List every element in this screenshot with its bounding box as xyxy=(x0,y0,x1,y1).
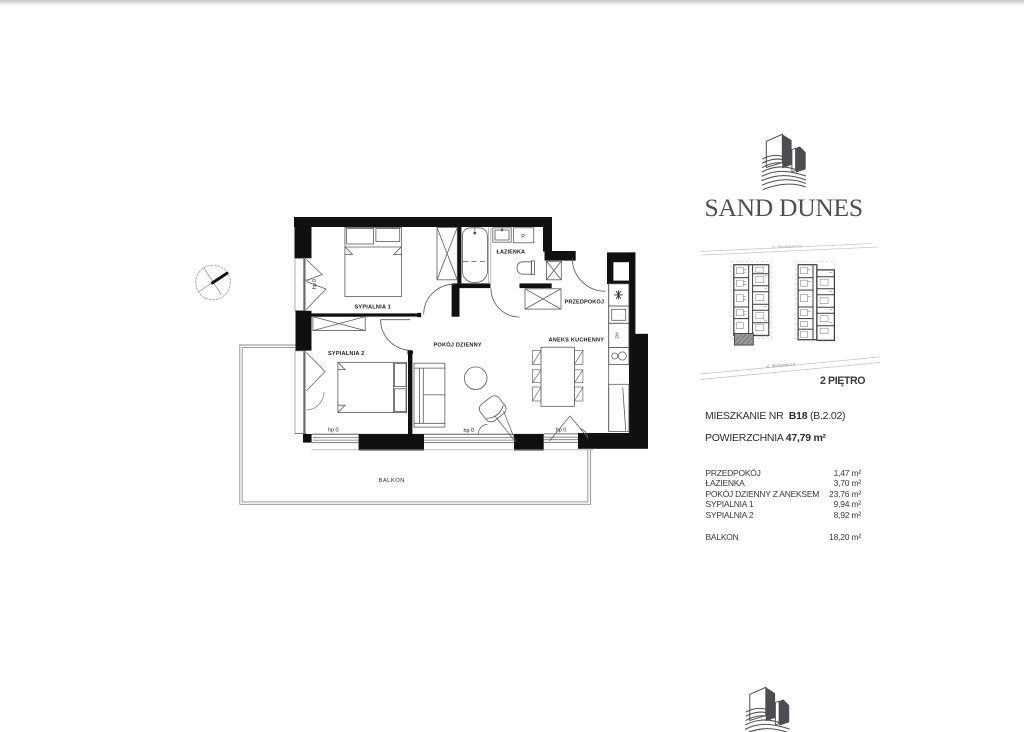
svg-text:POKÓJ DZIENNY: POKÓJ DZIENNY xyxy=(434,340,482,348)
svg-text:ul. Mickiewicza: ul. Mickiewicza xyxy=(766,361,796,369)
svg-text:PRZEDPOKÓJ: PRZEDPOKÓJ xyxy=(565,297,605,305)
svg-text:P: P xyxy=(521,234,525,240)
svg-text:hp 0: hp 0 xyxy=(328,427,339,433)
svg-text:hp 0: hp 0 xyxy=(312,279,318,289)
svg-text:ZM: ZM xyxy=(615,332,620,339)
svg-text:ul. Sienkiewicza: ul. Sienkiewicza xyxy=(772,243,803,249)
svg-text:ANEKS KUCHENNY: ANEKS KUCHENNY xyxy=(549,338,605,344)
svg-text:hp 0: hp 0 xyxy=(556,428,567,434)
svg-text:SYPIALNIA 1: SYPIALNIA 1 xyxy=(355,305,392,311)
svg-text:SYPIALNIA 2: SYPIALNIA 2 xyxy=(328,351,365,357)
svg-text:hp 0: hp 0 xyxy=(464,428,475,434)
svg-text:ŁAZIENKA: ŁAZIENKA xyxy=(497,250,526,256)
svg-text:BALKON: BALKON xyxy=(379,478,405,484)
